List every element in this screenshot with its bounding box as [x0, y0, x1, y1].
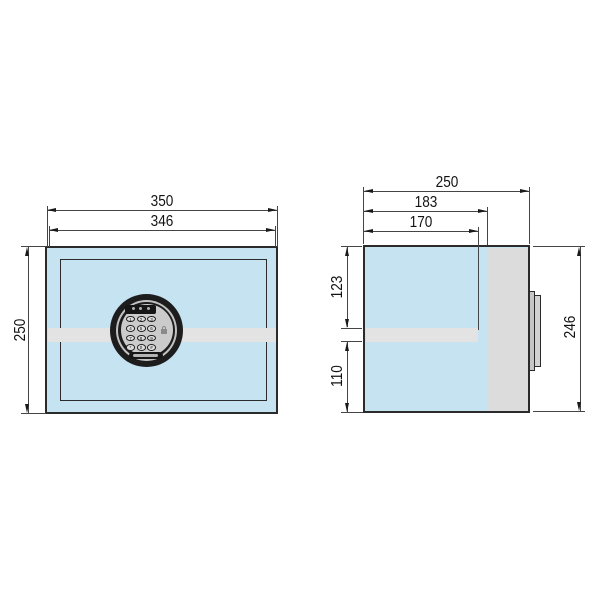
dim-label-110: 110 — [331, 357, 345, 394]
dimension-line — [347, 247, 348, 327]
arrowhead — [345, 403, 349, 412]
dimension-line — [364, 211, 487, 212]
arrowhead — [478, 209, 487, 213]
extension-line — [341, 412, 363, 413]
extension-line — [529, 187, 530, 244]
arrowhead — [266, 228, 275, 232]
display-dot — [139, 307, 142, 310]
dimension-line — [47, 210, 277, 211]
dimension-line — [364, 191, 529, 192]
arrowhead — [469, 229, 478, 233]
dim-label-346: 346 — [143, 215, 180, 229]
dimension-line — [49, 230, 275, 231]
dimension-line — [347, 342, 348, 412]
arrowhead — [364, 209, 373, 213]
arrowhead — [364, 189, 373, 193]
dim-label-123: 123 — [331, 268, 345, 305]
keypad-button-2[interactable]: 2 — [137, 316, 146, 323]
dim-label-350: 350 — [143, 195, 180, 209]
display-dot — [132, 307, 135, 310]
arrowhead — [49, 228, 58, 232]
keypad-button-5[interactable]: 5 — [137, 325, 146, 332]
arrowhead — [577, 402, 581, 411]
extension-line — [533, 411, 585, 412]
keypad-button-8[interactable]: 8 — [137, 335, 146, 342]
keypad-button-0[interactable]: 0 — [137, 344, 146, 351]
display-dot — [147, 307, 150, 310]
extension-line — [478, 227, 479, 330]
safe-technical-drawing: 1 2 3 4 5 6 7 8 9 * 0 # — [0, 0, 600, 600]
arrowhead — [364, 229, 373, 233]
keypad-button-hash[interactable]: # — [147, 344, 156, 351]
arrowhead — [577, 247, 581, 256]
dim-label-246: 246 — [564, 308, 578, 345]
arrowhead — [345, 319, 349, 328]
keypad-button-1[interactable]: 1 — [126, 316, 135, 323]
arrowhead — [268, 208, 277, 212]
arrowhead — [520, 189, 529, 193]
dim-label-250-side: 250 — [428, 176, 465, 190]
dim-label-183: 183 — [407, 196, 444, 210]
extension-line — [341, 328, 362, 329]
lock-bottom-handle-slot — [133, 354, 158, 357]
dimension-line — [364, 231, 478, 232]
side-back-panel — [487, 248, 528, 411]
arrowhead — [345, 342, 349, 351]
dimension-line — [580, 247, 581, 411]
arrowhead — [25, 247, 29, 256]
dim-label-250-front: 250 — [14, 311, 28, 348]
arrowhead — [47, 208, 56, 212]
rear-bracket-inner — [534, 295, 541, 367]
keypad-button-6[interactable]: 6 — [147, 325, 156, 332]
keypad-button-4[interactable]: 4 — [126, 325, 135, 332]
arrowhead — [25, 404, 29, 413]
keypad-button-7[interactable]: 7 — [126, 335, 135, 342]
keypad-button-9[interactable]: 9 — [147, 335, 156, 342]
keypad-button-star[interactable]: * — [126, 344, 135, 351]
extension-line — [363, 187, 364, 244]
side-highlight-band — [366, 328, 479, 342]
arrowhead — [345, 247, 349, 256]
keypad-button-3[interactable]: 3 — [147, 316, 156, 323]
dim-label-170: 170 — [402, 216, 439, 230]
